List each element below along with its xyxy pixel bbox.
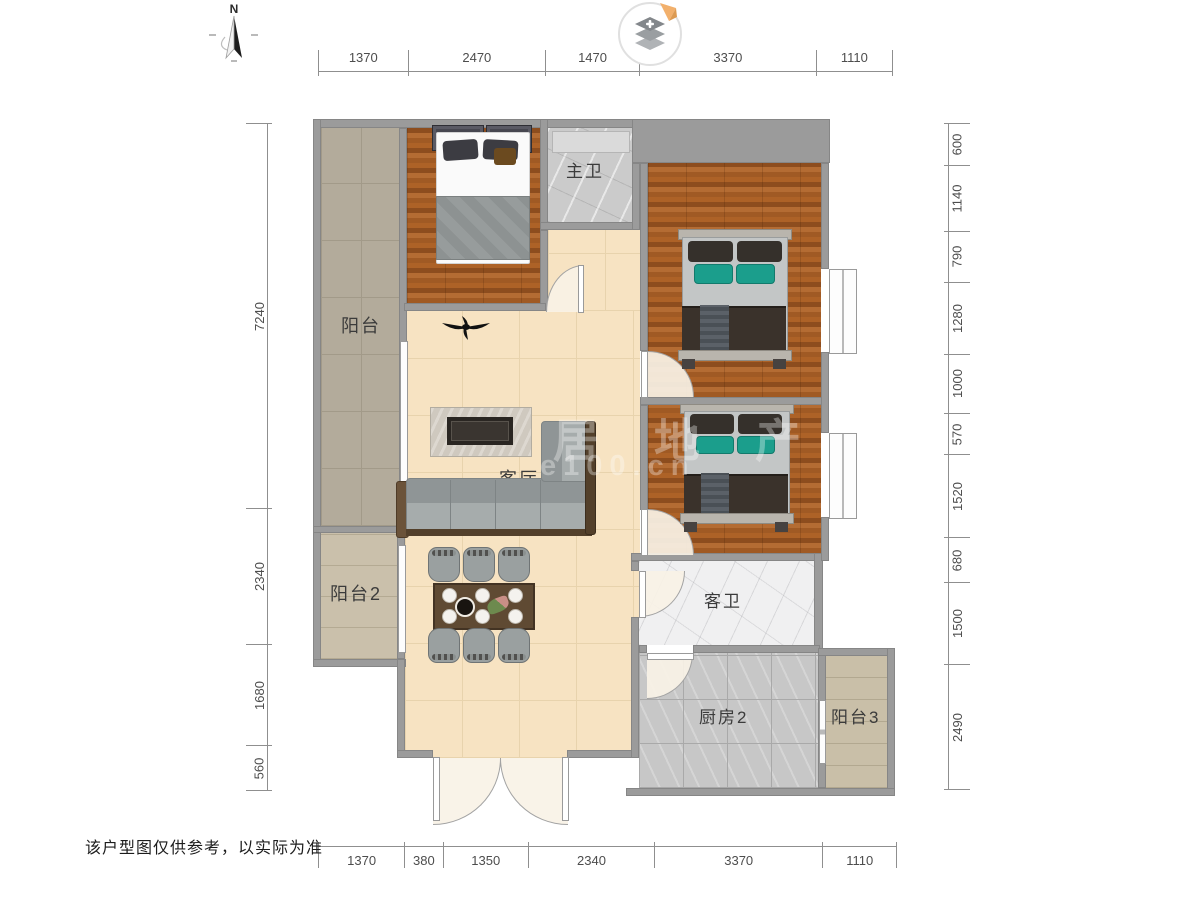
dimension-segment: 2340	[528, 842, 654, 868]
teal-cushion	[694, 264, 733, 284]
watermark-url: e100.cn	[540, 450, 695, 483]
dimension-label: 1350	[471, 853, 500, 868]
plate	[442, 609, 457, 624]
plate	[475, 588, 490, 603]
sofa-horizontal	[406, 478, 594, 533]
dining-chair	[428, 547, 460, 582]
blanket	[684, 474, 788, 516]
bag-on-bed	[494, 148, 516, 165]
wall	[639, 645, 647, 653]
wall	[313, 119, 321, 667]
dimension-strip-top: 13702470147033701110	[318, 50, 893, 76]
dimension-label: 1110	[841, 50, 868, 65]
teal-cushion	[736, 264, 775, 284]
door-leaf-master-bedroom	[578, 265, 584, 313]
dimension-segment: 1110	[822, 842, 897, 868]
plate	[508, 588, 523, 603]
dimension-segment: 2470	[408, 50, 545, 76]
entrance-door-arc-left	[433, 758, 501, 825]
dimension-segment: 1110	[816, 50, 893, 76]
dimension-segment: 1500	[944, 582, 970, 664]
tv-screen	[447, 417, 513, 445]
wall	[640, 163, 648, 351]
wall	[821, 163, 829, 269]
dining-chair	[463, 628, 495, 663]
wall	[821, 517, 829, 561]
pillow	[442, 139, 478, 161]
dimension-segment: 380	[404, 842, 442, 868]
dimension-label: 1520	[950, 482, 965, 511]
dimension-segment: 680	[944, 537, 970, 583]
dimension-label: 560	[251, 757, 266, 779]
wall	[632, 163, 640, 230]
dimension-strip-right: 600114079012801000570152068015002490	[944, 123, 970, 790]
dimension-label: 1110	[846, 853, 873, 868]
dimension-segment: 3370	[654, 842, 822, 868]
wall	[397, 659, 405, 758]
dimension-segment: 2490	[944, 664, 970, 790]
window-balcony2	[398, 545, 406, 653]
entrance-door-arc-right	[500, 758, 568, 825]
wall	[397, 750, 433, 758]
wall	[540, 119, 548, 230]
wall	[313, 526, 405, 533]
room-label-balcony2: 阳台2	[330, 580, 382, 606]
dimension-segment: 1350	[443, 842, 528, 868]
dimension-label: 1500	[950, 609, 965, 638]
wall	[632, 119, 830, 163]
quilt	[436, 196, 530, 260]
center-bowl	[455, 597, 475, 617]
door-leaf-bedroom2	[641, 351, 648, 398]
dimension-label: 1370	[349, 50, 378, 65]
dimension-label: 3370	[713, 50, 742, 65]
room-label-guest-bath: 客卫	[704, 587, 742, 612]
dimension-segment: 1520	[944, 454, 970, 536]
plate	[508, 609, 523, 624]
blanket	[682, 306, 786, 352]
window-kitchen-balcony3	[819, 700, 826, 764]
door-leaf-guest-bath	[639, 571, 646, 618]
pillow	[688, 241, 733, 262]
dimension-segment: 1280	[944, 282, 970, 354]
dimension-label: 1370	[347, 853, 376, 868]
dimension-label: 7240	[252, 302, 267, 331]
dimension-strip-left: 724023401680560	[246, 123, 272, 791]
bed-leg	[775, 522, 788, 532]
dimension-segment: 790	[944, 231, 970, 282]
dining-chair	[428, 628, 460, 663]
bed-leg	[682, 359, 695, 369]
dimension-label: 680	[949, 549, 964, 571]
dimension-label: 3370	[724, 853, 753, 868]
vanity-counter	[552, 131, 630, 153]
dimension-segment: 7240	[246, 123, 272, 508]
dimension-label: 790	[949, 246, 964, 268]
dimension-label: 570	[949, 423, 964, 445]
bed-leg	[773, 359, 786, 369]
ceiling-fan-icon	[438, 314, 494, 342]
wall	[626, 788, 895, 796]
room-label-kitchen: 厨房2	[699, 703, 748, 728]
wall	[631, 561, 639, 571]
dimension-label: 1000	[950, 370, 965, 399]
dimension-segment: 1000	[944, 354, 970, 414]
door-leaf-bedroom3	[641, 509, 648, 556]
layers-logo-icon	[616, 0, 684, 68]
dimension-segment: 560	[246, 745, 272, 791]
wall	[540, 222, 640, 230]
wall	[693, 645, 820, 653]
wall	[404, 303, 546, 311]
dining-chair	[498, 628, 530, 663]
room-label-balcony3: 阳台3	[831, 703, 880, 728]
dimension-label: 1680	[252, 681, 267, 710]
dimension-label: 380	[413, 853, 435, 868]
sofa-cushion-divider	[450, 480, 451, 529]
wall	[567, 750, 638, 758]
wall	[631, 617, 639, 758]
north-arrow-icon: N	[203, 0, 265, 76]
dining-chair	[463, 547, 495, 582]
north-label-n: N	[230, 2, 239, 16]
throw-blanket	[700, 305, 729, 355]
dimension-label: 2490	[950, 713, 965, 742]
dimension-label: 1140	[950, 185, 965, 213]
dimension-label: 2340	[577, 853, 606, 868]
dimension-segment: 1370	[318, 842, 404, 868]
dimension-segment: 1680	[246, 644, 272, 746]
bay-window-bedroom2	[829, 269, 857, 354]
dimension-segment: 570	[944, 413, 970, 454]
plate	[442, 588, 457, 603]
pillow	[737, 241, 782, 262]
dimension-segment: 2340	[246, 508, 272, 643]
dimension-label: 1470	[578, 50, 607, 65]
floor-plan-page: N 13702470147033701110 13703801350234033…	[0, 0, 1200, 900]
wall	[818, 648, 895, 656]
dimension-segment: 600	[944, 123, 970, 165]
wall	[887, 648, 895, 796]
dimension-label: 2340	[252, 562, 267, 591]
dimension-label: 2470	[462, 50, 491, 65]
dimension-segment: 1370	[318, 50, 408, 76]
dimension-label: 1280	[950, 304, 965, 333]
entrance-door-leaf-right	[562, 757, 569, 821]
bed-leg	[684, 522, 697, 532]
room-label-master-bath: 主卫	[566, 157, 604, 182]
sofa-frame-front	[406, 529, 592, 536]
dimension-strip-bottom: 13703801350234033701110	[318, 842, 897, 868]
entrance-door-leaf-left	[433, 757, 440, 821]
sofa-cushion-divider	[540, 480, 541, 529]
wall	[814, 553, 823, 653]
room-label-balcony1: 阳台	[341, 312, 381, 338]
sofa-cushion-divider	[495, 480, 496, 529]
disclaimer-text: 该户型图仅供参考，以实际为准	[85, 834, 323, 858]
dining-chair	[498, 547, 530, 582]
door-leaf-kitchen	[647, 653, 694, 660]
wall	[313, 659, 406, 667]
dimension-segment: 1140	[944, 165, 970, 231]
dimension-label: 600	[949, 134, 964, 156]
